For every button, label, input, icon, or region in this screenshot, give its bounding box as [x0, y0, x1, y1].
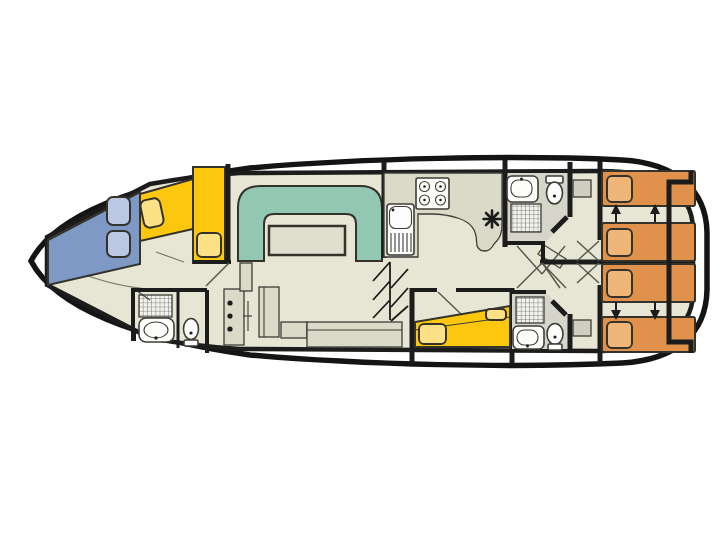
cabinet: [259, 287, 279, 337]
toilet-icon: [184, 319, 199, 347]
boat-deck-plan: [0, 0, 720, 540]
sink-icon: [507, 176, 538, 202]
pillow: [107, 197, 130, 225]
sink-icon: [513, 326, 544, 349]
sink-icon: [139, 318, 174, 342]
cabinet-small: [281, 322, 307, 338]
pillow: [607, 270, 632, 297]
wardrobe: [573, 180, 591, 197]
hob-icon: [416, 178, 449, 209]
toilet-icon: [547, 324, 563, 351]
pillow: [419, 324, 446, 344]
heater-marker-icon: [484, 211, 501, 228]
pillow: [486, 309, 506, 320]
bench: [307, 322, 402, 347]
pillow: [607, 322, 632, 348]
deck-plan-canvas: [0, 0, 720, 540]
shower-icon: [516, 297, 544, 323]
toilet-icon: [546, 176, 563, 204]
galley-sink-icon: [387, 204, 414, 255]
side-panel: [240, 263, 252, 291]
pillow: [607, 229, 632, 256]
shower-icon: [139, 295, 172, 317]
knob-icon: [227, 313, 232, 318]
console-body: [224, 289, 244, 345]
knob-icon: [227, 326, 232, 331]
table: [269, 226, 345, 255]
pillow: [607, 176, 632, 202]
pillow: [197, 233, 221, 257]
shower-icon: [511, 204, 541, 232]
wardrobe: [573, 320, 591, 336]
pillow: [107, 231, 130, 257]
knob-icon: [227, 300, 232, 305]
